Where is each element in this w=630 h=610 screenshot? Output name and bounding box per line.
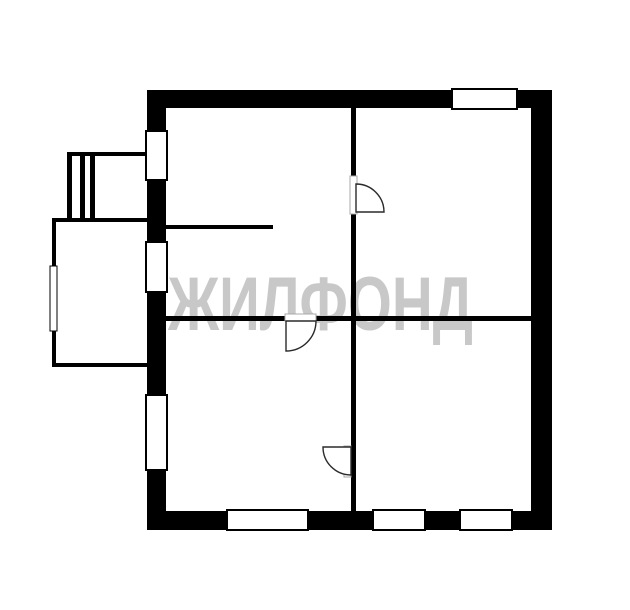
stairs-top-edge: [67, 152, 148, 156]
door-lower-rooms-swing: [323, 447, 351, 475]
inner-wall-stub: [166, 225, 273, 229]
window-bottom-right: [460, 510, 512, 530]
stairs-bar-1: [67, 152, 72, 220]
window-left-upper: [146, 131, 167, 180]
stairs-bar-2: [80, 152, 85, 220]
porch-window: [50, 266, 57, 331]
inner-wall-horizontal-left: [166, 316, 351, 321]
floor-plan-image: ЖИЛФОНД: [0, 0, 630, 610]
watermark-text: ЖИЛФОНД: [167, 262, 473, 347]
annex-layer: [50, 152, 148, 367]
inner-wall-vertical: [351, 108, 356, 511]
door-upper-right-room-swing: [356, 184, 384, 212]
floor-plan-svg: ЖИЛФОНД: [0, 0, 630, 610]
inner-wall-horizontal-right: [356, 316, 531, 321]
window-bottom-mid: [373, 510, 425, 530]
porch-top-edge: [52, 218, 148, 222]
stairs-bar-3: [90, 152, 95, 220]
window-top-right: [452, 89, 517, 109]
window-bottom-left: [227, 510, 308, 530]
outer-wall-right: [531, 90, 552, 530]
window-left-lower: [146, 395, 167, 470]
door-lower-left-room-jamb: [285, 314, 316, 321]
window-left-middle: [146, 242, 167, 292]
porch-bottom-edge: [52, 363, 148, 367]
